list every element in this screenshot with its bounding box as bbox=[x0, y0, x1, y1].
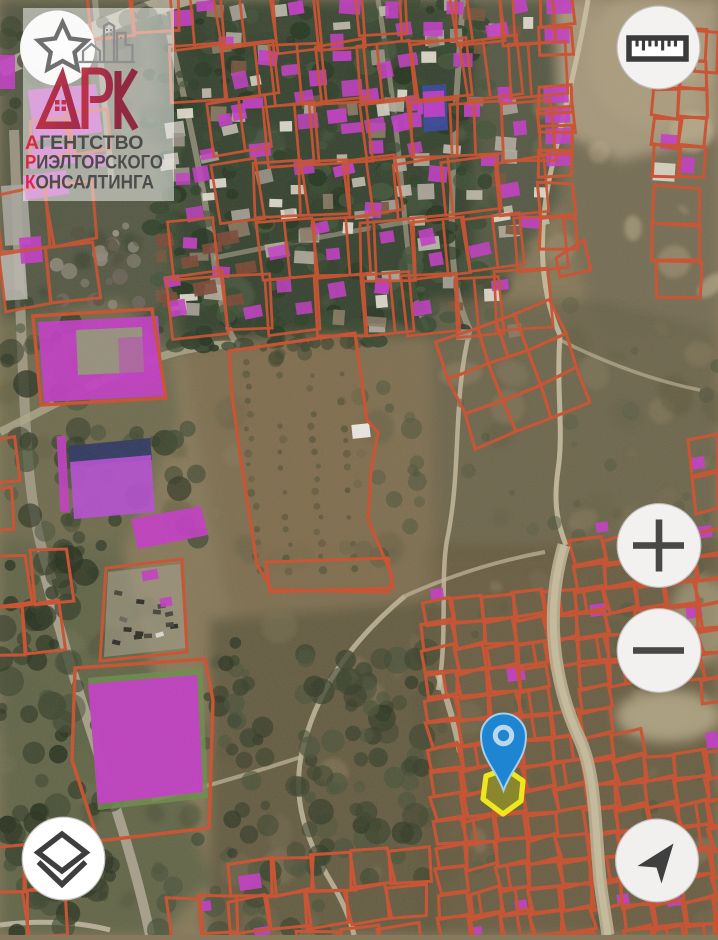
svg-text:РИЭЛТОРСКОГО: РИЭЛТОРСКОГО bbox=[25, 152, 163, 174]
svg-text:КОНСАЛТИНГА: КОНСАЛТИНГА bbox=[25, 172, 154, 194]
